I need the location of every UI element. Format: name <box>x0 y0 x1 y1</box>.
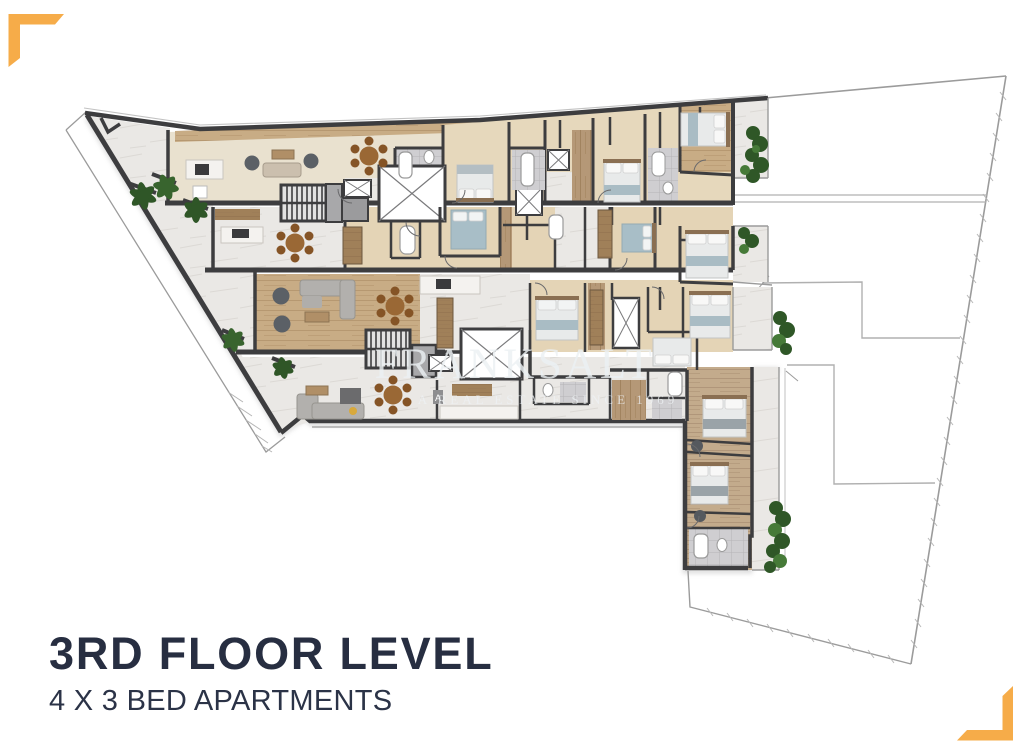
svg-text:FRANKSALT: FRANKSALT <box>375 341 656 388</box>
svg-text:A REAL ESTATE SINCE 1969: A REAL ESTATE SINCE 1969 <box>418 392 679 407</box>
